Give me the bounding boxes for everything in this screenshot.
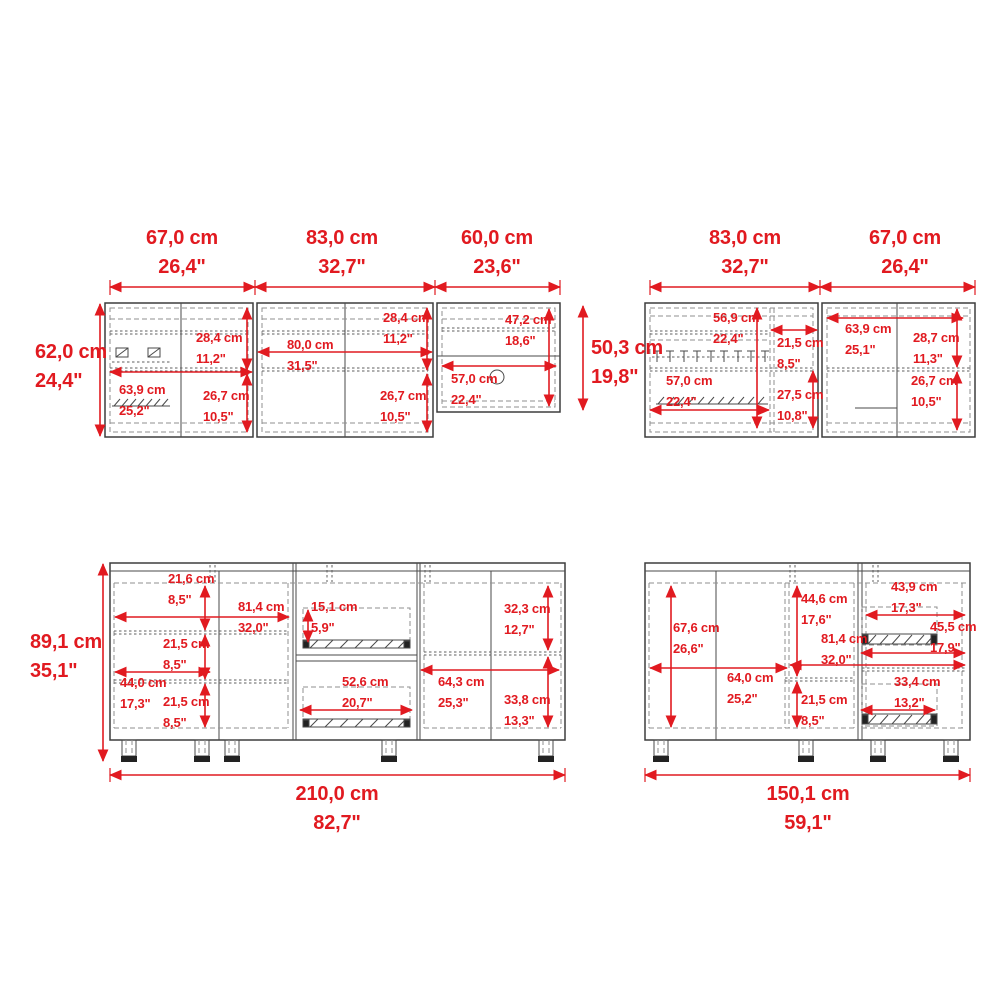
dim-baselong-inner-10: 33,8 cm13,3"	[504, 689, 550, 732]
dim-baselong-total-width: 210,0 cm82,7"	[296, 780, 379, 838]
dim-upperlong-width-3: 60,0 cm23,6"	[461, 224, 533, 282]
dim-baselong-inner-6: 15,1 cm5,9"	[311, 596, 357, 639]
dim-baseshort-inner-4: 81,4 cm32,0"	[821, 628, 867, 671]
dim-upperlong-inner-7: 47,2 cm18,6"	[505, 309, 551, 352]
dim-baseshort-inner-2: 64,0 cm25,2"	[727, 667, 773, 710]
dim-uppershort-inner-7: 26,7 cm10,5"	[911, 370, 957, 413]
dim-upperlong-inner-5: 28,4 cm11,2"	[383, 307, 429, 350]
dim-uppershort-inner-5: 63,9 cm25,1"	[845, 318, 891, 361]
dim-upperlong-height: 62,0 cm24,4"	[35, 338, 107, 396]
dim-baseshort-total-width: 150,1 cm59,1"	[767, 780, 850, 838]
dim-baselong-inner-9: 32,3 cm12,7"	[504, 598, 550, 641]
dim-baselong-inner-7: 52,6 cm20,7"	[342, 671, 388, 714]
cabinet-legs	[653, 740, 959, 762]
wall-anchor-marks	[790, 565, 878, 582]
dim-uppershort-inner-1: 56,9 cm22,4"	[713, 307, 759, 350]
dim-uppershort-inner-4: 27,5 cm10,8"	[777, 384, 823, 427]
wall-anchor-marks	[210, 565, 430, 582]
dim-uppershort-inner-2: 21,5 cm8,5"	[777, 332, 823, 375]
dim-baseshort-inner-5: 21,5 cm8,5"	[801, 689, 847, 732]
dim-upperlong-width-1: 67,0 cm26,4"	[146, 224, 218, 282]
dimension-diagram-page: { "meta": { "type": "furniture-dimension…	[0, 0, 1000, 1000]
dim-baselong-inner-8: 64,3 cm25,3"	[438, 671, 484, 714]
dim-upperlong-inner-2: 63,9 cm25,2"	[119, 379, 165, 422]
dim-upperlong-inner-1: 28,4 cm11,2"	[196, 327, 242, 370]
dim-upperlong-width-2: 83,0 cm32,7"	[306, 224, 378, 282]
diagram-stage: 67,0 cm26,4" 83,0 cm32,7" 60,0 cm23,6" 6…	[0, 0, 1000, 1000]
dim-upperlong-inner-8: 57,0 cm22,4"	[451, 368, 497, 411]
diagram-linework	[0, 0, 1000, 1000]
dim-upperlong-inner-6: 26,7 cm10,5"	[380, 385, 426, 428]
hook-rail-icon	[652, 351, 769, 362]
dim-baseshort-inner-7: 45,5 cm17,9"	[930, 616, 976, 659]
dim-baselong-inner-3: 21,5 cm8,5"	[163, 633, 209, 676]
dim-baseshort-inner-1: 67,6 cm26,6"	[673, 617, 719, 660]
dim-upperlong-inner-3: 26,7 cm10,5"	[203, 385, 249, 428]
cabinet-legs	[121, 740, 554, 762]
dim-baselong-inner-5: 21,5 cm8,5"	[163, 691, 209, 734]
dim-uppershort-inner-3: 57,0 cm22,4"	[666, 370, 712, 413]
dim-baseshort-inner-8: 33,4 cm13,2"	[894, 671, 940, 714]
dim-baseshort-inner-3: 44,6 cm17,6"	[801, 588, 847, 631]
dim-baseshort-inner-6: 43,9 cm17,3"	[891, 576, 937, 619]
hinge-hardware-icon	[112, 348, 172, 362]
dim-uppershort-inner-6: 28,7 cm11,3"	[913, 327, 959, 370]
dim-baselong-inner-1: 21,6 cm8,5"	[168, 568, 214, 611]
dim-uppershort-width-1: 83,0 cm32,7"	[709, 224, 781, 282]
dim-uppershort-width-2: 67,0 cm26,4"	[869, 224, 941, 282]
dim-upperlong-inner-4: 80,0 cm31,5"	[287, 334, 333, 377]
dim-baselong-inner-4: 44,0 cm17,3"	[120, 672, 166, 715]
dim-upperlong-right-section-height: 50,3 cm19,8"	[591, 334, 663, 392]
dim-baselong-inner-2: 81,4 cm32,0"	[238, 596, 284, 639]
dim-baselong-height: 89,1 cm35,1"	[30, 628, 102, 686]
